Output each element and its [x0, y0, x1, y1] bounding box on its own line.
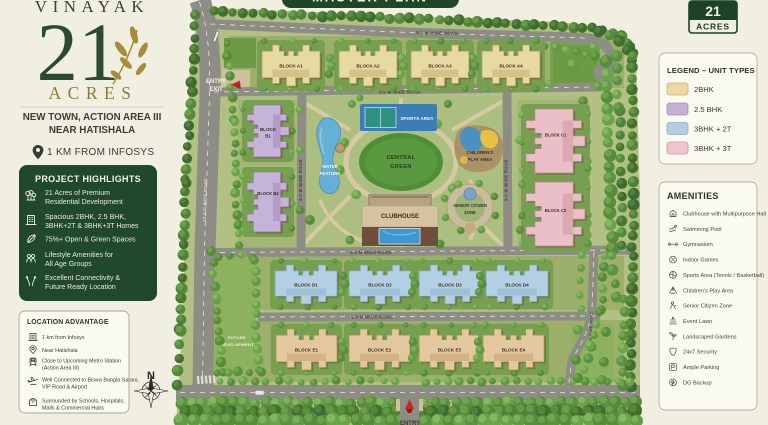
- svg-text:Ample Parking: Ample Parking: [683, 365, 719, 371]
- svg-text:CENTRAL: CENTRAL: [386, 155, 415, 161]
- svg-text:ACRES: ACRES: [49, 83, 138, 103]
- svg-text:FEATURE: FEATURE: [320, 171, 340, 176]
- svg-text:BLOCK D1: BLOCK D1: [294, 282, 318, 287]
- svg-text:3BHK + 3T: 3BHK + 3T: [694, 144, 732, 153]
- svg-text:75%+ Open & Green Spaces: 75%+ Open & Green Spaces: [45, 236, 136, 243]
- svg-text:Well Connected to Biswa Bangla: Well Connected to Biswa Bangla Sarani,: [42, 378, 139, 384]
- svg-text:BLOCK D4: BLOCK D4: [505, 282, 529, 287]
- svg-text:Surrounded by Schools, Hospita: Surrounded by Schools, Hospitals,: [42, 399, 125, 405]
- svg-text:Near Hatishala: Near Hatishala: [42, 348, 78, 354]
- svg-text:BLOCK E1: BLOCK E1: [295, 347, 319, 352]
- svg-text:Children’s Play Area: Children’s Play Area: [683, 288, 734, 294]
- svg-text:ZONE: ZONE: [464, 210, 476, 215]
- svg-text:Gymnasium: Gymnasium: [683, 242, 713, 248]
- svg-text:1 km from Infosys: 1 km from Infosys: [42, 335, 85, 341]
- svg-text:BLOCK A2: BLOCK A2: [356, 63, 380, 68]
- svg-text:21 Acres of Premium: 21 Acres of Premium: [45, 190, 110, 197]
- svg-text:BLOCK D3: BLOCK D3: [438, 282, 462, 287]
- svg-text:Landscaped Gardens: Landscaped Gardens: [683, 334, 737, 340]
- svg-text:WATER: WATER: [322, 164, 338, 169]
- svg-text:GREEN: GREEN: [390, 164, 412, 170]
- svg-text:9.0 M WIDE ROAD: 9.0 M WIDE ROAD: [416, 30, 458, 36]
- svg-text:BLOCK A3: BLOCK A3: [428, 63, 452, 68]
- svg-text:3BHK + 2T: 3BHK + 2T: [694, 124, 732, 133]
- svg-text:Future Ready Location: Future Ready Location: [45, 284, 116, 291]
- svg-text:BLOCK E3: BLOCK E3: [438, 347, 462, 352]
- svg-text:NEW TOWN, ACTION AREA III: NEW TOWN, ACTION AREA III: [23, 112, 162, 123]
- svg-text:DEVELOPMENT: DEVELOPMENT: [220, 342, 254, 347]
- svg-text:24x7 Security: 24x7 Security: [683, 350, 717, 356]
- svg-text:B1: B1: [265, 134, 271, 139]
- svg-text:Clubhouse with Multipurpose Ha: Clubhouse with Multipurpose Hall: [683, 212, 766, 218]
- svg-text:MASTER PLAN: MASTER PLAN: [312, 0, 428, 5]
- svg-text:LEGEND – UNIT TYPES: LEGEND – UNIT TYPES: [667, 66, 755, 75]
- svg-text:All Age Groups: All Age Groups: [45, 261, 92, 268]
- svg-text:9.0 M WIDE ROAD: 9.0 M WIDE ROAD: [298, 159, 303, 201]
- svg-text:21: 21: [705, 3, 721, 19]
- svg-text:SENIOR CITIZEN: SENIOR CITIZEN: [453, 203, 487, 208]
- svg-text:2BHK: 2BHK: [694, 85, 714, 94]
- svg-text:1 KM FROM INFOSYS: 1 KM FROM INFOSYS: [47, 147, 154, 158]
- svg-text:ACRES: ACRES: [696, 22, 730, 32]
- svg-text:FUTURE: FUTURE: [228, 335, 246, 340]
- svg-text:CLUBHOUSE: CLUBHOUSE: [381, 214, 419, 220]
- svg-text:EXIT: EXIT: [209, 87, 223, 93]
- svg-text:BLOCK D2: BLOCK D2: [368, 282, 392, 287]
- svg-text:PLAY AREA: PLAY AREA: [468, 157, 494, 162]
- svg-text:Lifestyle Amenities for: Lifestyle Amenities for: [45, 252, 114, 259]
- svg-text:ENTRY: ENTRY: [206, 79, 226, 85]
- svg-text:BLOCK A1: BLOCK A1: [279, 63, 303, 68]
- svg-text:ENTRY: ENTRY: [400, 421, 420, 425]
- svg-text:Excellent Connectivity &: Excellent Connectivity &: [45, 275, 120, 282]
- svg-text:Residential Development: Residential Development: [45, 199, 123, 206]
- svg-text:BLOCK E2: BLOCK E2: [368, 347, 392, 352]
- svg-text:Indoor Games: Indoor Games: [683, 258, 719, 264]
- svg-text:Spacious 2BHK, 2.5 BHK,: Spacious 2BHK, 2.5 BHK,: [45, 214, 126, 221]
- svg-text:BLOCK E4: BLOCK E4: [502, 347, 526, 352]
- svg-text:9.0 M WIDE ROAD: 9.0 M WIDE ROAD: [504, 159, 509, 201]
- svg-text:VIP Road & Airport: VIP Road & Airport: [42, 385, 88, 391]
- svg-text:BLOCK: BLOCK: [260, 127, 277, 132]
- svg-text:LOCATION ADVANTAGE: LOCATION ADVANTAGE: [27, 319, 109, 326]
- svg-text:Malls & Commercial Hubs: Malls & Commercial Hubs: [42, 406, 104, 412]
- svg-text:Event Lawn: Event Lawn: [683, 319, 712, 325]
- svg-text:9.0 M WIDE ROAD: 9.0 M WIDE ROAD: [351, 315, 393, 320]
- svg-text:DG Backup: DG Backup: [683, 380, 712, 386]
- svg-text:BLOCK B2: BLOCK B2: [257, 191, 279, 196]
- svg-text:BLOCK C2: BLOCK C2: [545, 208, 567, 213]
- svg-text:Senior Citizen Zone: Senior Citizen Zone: [683, 304, 732, 310]
- svg-text:BLOCK A4: BLOCK A4: [499, 63, 523, 68]
- svg-text:NEAR HATISHALA: NEAR HATISHALA: [49, 125, 135, 136]
- svg-text:9.0 M WIDE ROAD: 9.0 M WIDE ROAD: [350, 250, 392, 255]
- svg-text:Swimming Pool: Swimming Pool: [683, 227, 722, 233]
- svg-text:BLOCK C1: BLOCK C1: [545, 132, 567, 137]
- svg-text:(Action Area III): (Action Area III): [42, 366, 79, 372]
- svg-text:3BHK+2T & 3BHK+3T Homes: 3BHK+2T & 3BHK+3T Homes: [45, 223, 139, 230]
- svg-text:SPORTS AREA: SPORTS AREA: [400, 116, 434, 121]
- svg-text:Sports Area (Tennis / Basketba: Sports Area (Tennis / Basketball): [683, 273, 764, 279]
- svg-text:CHILDREN’S: CHILDREN’S: [467, 150, 494, 155]
- svg-text:2.5 BHK: 2.5 BHK: [694, 105, 722, 114]
- svg-text:Close to Upcoming Metro Statio: Close to Upcoming Metro Station: [42, 359, 121, 365]
- svg-text:AMENITIES: AMENITIES: [667, 191, 719, 201]
- svg-text:PROJECT HIGHLIGHTS: PROJECT HIGHLIGHTS: [35, 174, 141, 184]
